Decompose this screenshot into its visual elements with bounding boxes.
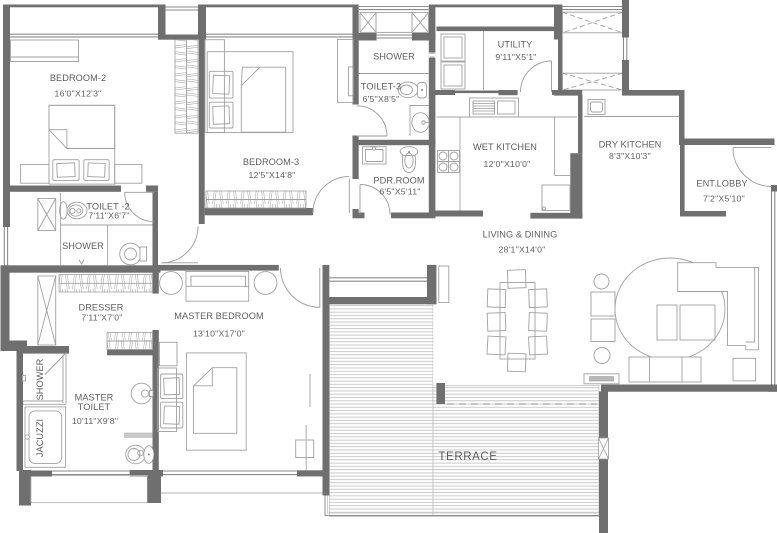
svg-text:12'0"X10'0": 12'0"X10'0"	[483, 159, 530, 169]
svg-text:DRY KITCHEN: DRY KITCHEN	[599, 140, 662, 150]
svg-text:SHOWER: SHOWER	[35, 358, 45, 400]
svg-text:BEDROOM-3: BEDROOM-3	[243, 157, 299, 167]
svg-text:8'3"X10'3": 8'3"X10'3"	[609, 151, 651, 161]
svg-text:13'10"X17'0": 13'10"X17'0"	[193, 329, 245, 339]
svg-text:WET KITCHEN: WET KITCHEN	[473, 142, 537, 152]
svg-text:ENT.LOBBY: ENT.LOBBY	[696, 179, 747, 189]
svg-text:TERRACE: TERRACE	[438, 451, 497, 463]
svg-text:10'11"X9'8": 10'11"X9'8"	[72, 416, 118, 426]
svg-text:SHOWER: SHOWER	[373, 52, 415, 62]
svg-text:6'5"X8'5": 6'5"X8'5"	[363, 94, 400, 104]
svg-text:TOILET: TOILET	[78, 402, 111, 412]
svg-text:LIVING & DINING: LIVING & DINING	[483, 230, 558, 240]
svg-text:9'11"X5'1": 9'11"X5'1"	[495, 52, 536, 62]
svg-text:MASTER BEDROOM: MASTER BEDROOM	[174, 311, 263, 321]
svg-text:UTILITY: UTILITY	[498, 40, 533, 50]
svg-text:6'5"X5'11": 6'5"X5'11"	[379, 187, 420, 197]
svg-text:DRESSER: DRESSER	[79, 303, 124, 313]
svg-text:JACUZZI: JACUZZI	[35, 419, 45, 457]
svg-text:SHOWER: SHOWER	[62, 241, 104, 251]
svg-text:7'11"X7'0": 7'11"X7'0"	[81, 313, 122, 323]
svg-text:TOILET-3: TOILET-3	[361, 82, 401, 92]
svg-text:28'1"X14'0": 28'1"X14'0"	[498, 245, 545, 255]
svg-text:16'0"X12'3": 16'0"X12'3"	[54, 89, 101, 99]
svg-text:7'11"X6'7": 7'11"X6'7"	[88, 211, 129, 221]
svg-text:12'5"X14'8": 12'5"X14'8"	[248, 170, 295, 180]
svg-text:PDR.ROOM: PDR.ROOM	[373, 176, 424, 186]
svg-text:7'2"X5'10": 7'2"X5'10"	[703, 194, 745, 204]
svg-text:BEDROOM-2: BEDROOM-2	[50, 73, 106, 83]
